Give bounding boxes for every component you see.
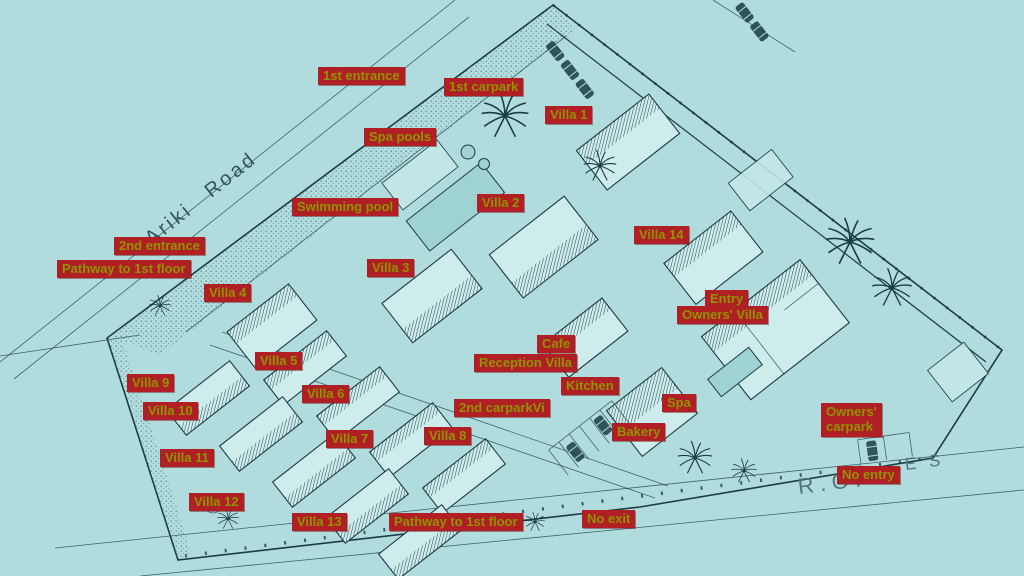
label-pathway-to-1st-floor-upper: Pathway to 1st floor [57, 260, 191, 278]
site-plan-screenshot: Ariki Road R.O. . E S 1st entrance1st ca… [0, 0, 1024, 576]
label-villa-2: Villa 2 [477, 194, 524, 212]
label-no-exit: No exit [582, 510, 635, 528]
label-villa-8: Villa 8 [424, 427, 471, 445]
label-villa-14: Villa 14 [634, 226, 689, 244]
label-villa-3: Villa 3 [367, 259, 414, 277]
label-owners-villa: Owners' Villa [677, 306, 768, 324]
label-villa-10: Villa 10 [143, 402, 198, 420]
label-swimming-pool: Swimming pool [292, 198, 398, 216]
label-spa: Spa [662, 394, 696, 412]
label-bakery: Bakery [612, 423, 665, 441]
label-villa-11: Villa 11 [160, 449, 214, 467]
label-cafe: Cafe [537, 335, 575, 353]
label-reception-villa: Reception Villa [474, 354, 577, 372]
label-villa-9: Villa 9 [127, 374, 174, 392]
label-villa-12: Villa 12 [189, 493, 244, 511]
label-villa-13: Villa 13 [292, 513, 347, 531]
label-villa-4: Villa 4 [204, 284, 251, 302]
label-villa-7: Villa 7 [326, 430, 373, 448]
label-second-carpark: 2nd carparkVi [454, 399, 550, 417]
label-first-carpark: 1st carpark [444, 78, 523, 96]
label-pathway-to-1st-floor-lower: Pathway to 1st floor [389, 513, 523, 531]
label-first-entrance: 1st entrance [318, 67, 405, 85]
label-kitchen: Kitchen [561, 377, 619, 395]
label-no-entry: No entry [837, 466, 900, 484]
label-spa-pools: Spa pools [364, 128, 436, 146]
label-owners-carpark: Owners' carpark [821, 403, 882, 437]
label-villa-5: Villa 5 [255, 352, 302, 370]
annotation-label-layer: 1st entrance1st carparkVilla 1Spa poolsS… [0, 0, 1024, 576]
label-second-entrance: 2nd entrance [114, 237, 205, 255]
label-villa-1: Villa 1 [545, 106, 592, 124]
label-villa-6: Villa 6 [302, 385, 349, 403]
